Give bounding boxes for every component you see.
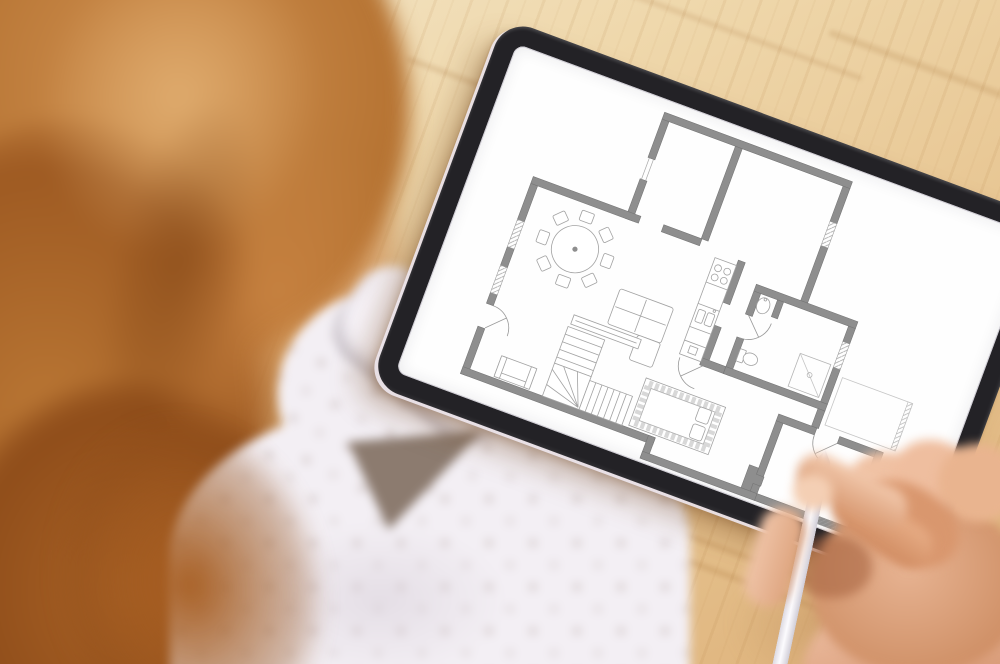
thumb [739, 502, 811, 613]
grip-fingers [0, 0, 1000, 664]
photo-scene [0, 0, 1000, 664]
index-fingertip [793, 474, 833, 510]
